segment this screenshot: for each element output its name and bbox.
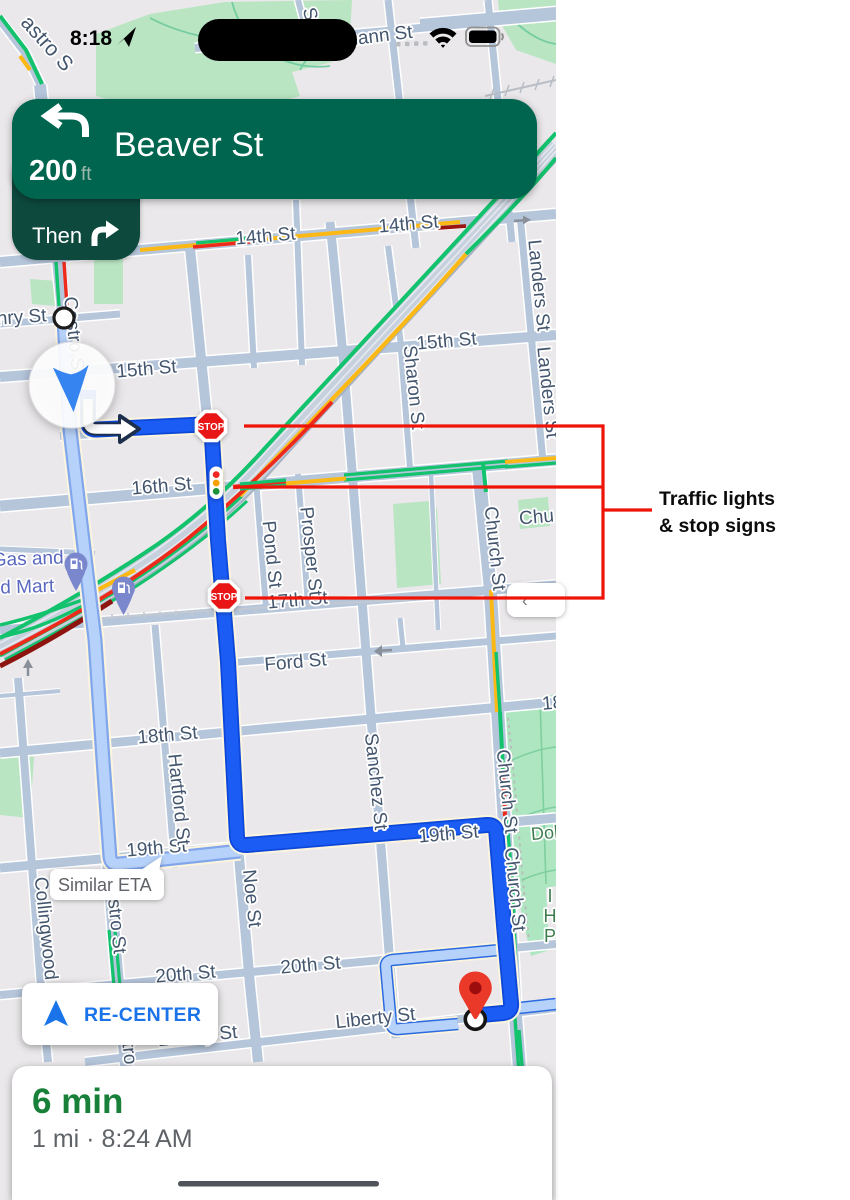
svg-text:1 mi · 8:24 AM: 1 mi · 8:24 AM <box>32 1125 193 1153</box>
svg-text:Then: Then <box>32 223 82 248</box>
svg-text:P: P <box>544 926 556 946</box>
svg-text:STOP: STOP <box>211 592 238 603</box>
svg-text:‹: ‹ <box>522 591 528 610</box>
svg-text:I: I <box>547 886 552 906</box>
svg-text:Chu: Chu <box>518 506 555 530</box>
svg-text:RE-CENTER: RE-CENTER <box>84 1004 201 1026</box>
svg-text:H: H <box>544 906 557 926</box>
svg-text:Traffic lights: Traffic lights <box>659 488 775 510</box>
svg-text:Similar ETA: Similar ETA <box>58 875 152 895</box>
svg-text:Dol: Dol <box>530 822 559 844</box>
svg-text:Beaver St: Beaver St <box>114 126 264 164</box>
svg-text:8:18: 8:18 <box>70 27 112 50</box>
svg-text:STOP: STOP <box>198 422 225 433</box>
svg-text:nry St: nry St <box>0 305 48 329</box>
svg-text:Gas and: Gas and <box>0 548 64 571</box>
svg-text:200: 200 <box>29 155 77 187</box>
svg-text:& stop signs: & stop signs <box>659 515 776 537</box>
svg-text:ft: ft <box>81 164 92 185</box>
svg-text:od Mart: od Mart <box>0 576 55 599</box>
svg-text:6 min: 6 min <box>32 1082 123 1121</box>
